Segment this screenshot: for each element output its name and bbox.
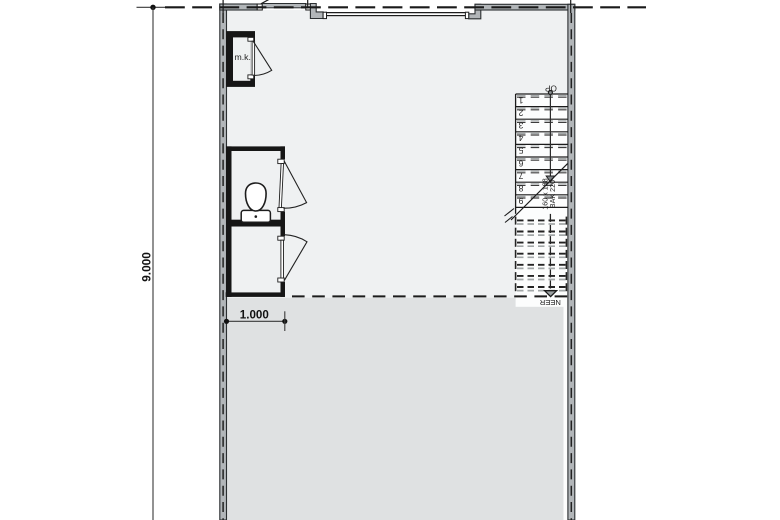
svg-text:8: 8 [518,184,523,194]
svg-text:9: 9 [518,196,523,206]
svg-text:OP: OP [544,83,556,92]
svg-text:BAK 220: BAK 220 [548,180,557,208]
svg-text:4: 4 [518,133,523,143]
svg-text:1.000: 1.000 [240,309,269,322]
svg-text:7: 7 [518,171,523,181]
svg-text:9.000: 9.000 [139,252,153,282]
svg-text:m.k.: m.k. [235,52,251,62]
svg-text:1: 1 [518,95,523,105]
svg-text:6: 6 [518,158,523,168]
svg-text:5: 5 [518,146,523,156]
svg-text:3: 3 [518,121,523,131]
svg-text:2: 2 [518,108,523,118]
svg-text:NEER: NEER [539,298,561,307]
